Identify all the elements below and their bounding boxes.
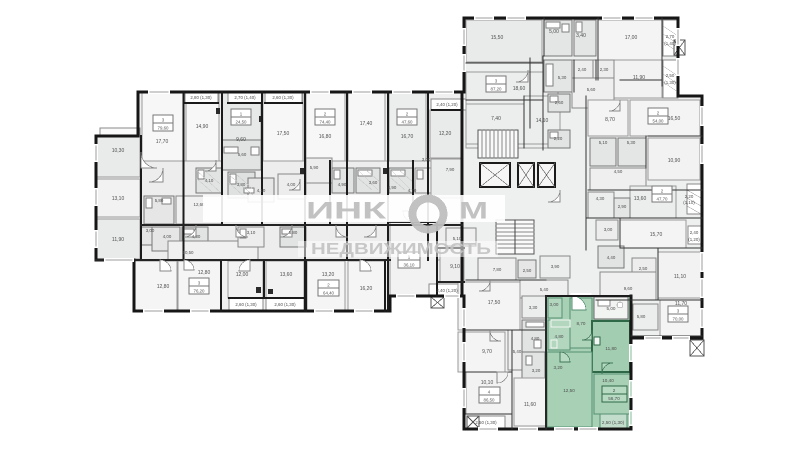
svg-text:11,90: 11,90 <box>112 237 124 243</box>
svg-text:3,30: 3,30 <box>529 305 538 310</box>
svg-text:13,20: 13,20 <box>322 272 335 278</box>
svg-text:5,80: 5,80 <box>155 198 164 203</box>
svg-text:4,80: 4,80 <box>192 234 201 239</box>
svg-text:5,00: 5,00 <box>607 306 616 311</box>
svg-text:56,70: 56,70 <box>608 396 620 401</box>
svg-text:16,20: 16,20 <box>360 286 373 292</box>
svg-text:36,10: 36,10 <box>404 263 416 268</box>
svg-text:НЕДВИЖИМОСТЬ: НЕДВИЖИМОСТЬ <box>311 241 491 258</box>
svg-text:9,70: 9,70 <box>482 349 492 355</box>
svg-text:2,60 (1,30): 2,60 (1,30) <box>272 95 294 100</box>
svg-text:2,50 (1,30): 2,50 (1,30) <box>602 420 625 425</box>
svg-text:3,20: 3,20 <box>554 365 563 370</box>
svg-text:86,50: 86,50 <box>484 398 496 403</box>
svg-text:18,60: 18,60 <box>513 86 526 92</box>
svg-text:4,00: 4,00 <box>287 182 296 187</box>
svg-text:4,10: 4,10 <box>257 188 266 193</box>
svg-text:3,40: 3,40 <box>576 33 586 39</box>
svg-text:5,30: 5,30 <box>627 140 636 145</box>
svg-text:ИНК: ИНК <box>306 198 387 225</box>
svg-text:17,00: 17,00 <box>625 35 638 41</box>
svg-text:4,80: 4,80 <box>555 334 564 339</box>
svg-text:5,40: 5,40 <box>540 287 549 292</box>
svg-text:5,40: 5,40 <box>513 349 522 354</box>
svg-text:13,10: 13,10 <box>112 196 125 202</box>
svg-text:11,90: 11,90 <box>633 75 645 81</box>
svg-text:2,50 (1,30): 2,50 (1,30) <box>475 420 497 425</box>
svg-text:2,40 (1,20): 2,40 (1,20) <box>436 288 458 293</box>
svg-text:64,40: 64,40 <box>323 291 335 296</box>
svg-text:2,70 (1,40): 2,70 (1,40) <box>234 95 256 100</box>
svg-text:4,40: 4,40 <box>607 255 616 260</box>
svg-text:12,80: 12,80 <box>157 284 170 290</box>
svg-text:12,00: 12,00 <box>236 272 249 278</box>
svg-text:2,90: 2,90 <box>618 204 627 209</box>
svg-text:2: 2 <box>613 388 616 393</box>
svg-text:12,20: 12,20 <box>439 131 452 137</box>
svg-text:16,80: 16,80 <box>319 134 332 140</box>
svg-text:2,40: 2,40 <box>690 230 699 235</box>
svg-text:М: М <box>459 198 488 225</box>
svg-text:87,20: 87,20 <box>491 87 503 92</box>
svg-text:5,30: 5,30 <box>558 75 567 80</box>
svg-text:7,90: 7,90 <box>446 167 455 172</box>
svg-text:8,70: 8,70 <box>577 321 586 326</box>
svg-text:2,50: 2,50 <box>639 266 648 271</box>
svg-text:13,60: 13,60 <box>280 272 293 278</box>
svg-text:3,10: 3,10 <box>247 230 256 235</box>
svg-text:2,20: 2,20 <box>685 194 694 199</box>
svg-text:7,40: 7,40 <box>491 116 501 122</box>
svg-text:14,90: 14,90 <box>196 124 209 130</box>
svg-text:9,60: 9,60 <box>236 137 246 143</box>
svg-text:4,70: 4,70 <box>408 188 417 193</box>
svg-text:11,10: 11,10 <box>674 274 686 280</box>
svg-text:5,90: 5,90 <box>310 165 319 170</box>
svg-text:79,60: 79,60 <box>158 126 170 131</box>
svg-text:2,40: 2,40 <box>578 67 587 72</box>
svg-text:9,10: 9,10 <box>450 264 460 270</box>
svg-text:2,80 (1,30): 2,80 (1,30) <box>190 95 212 100</box>
svg-text:2,60: 2,60 <box>555 100 564 105</box>
svg-text:11,60: 11,60 <box>524 402 536 408</box>
svg-text:4,30: 4,30 <box>596 196 605 201</box>
svg-text:4,90: 4,90 <box>338 182 347 187</box>
svg-text:3,60: 3,60 <box>369 180 378 185</box>
svg-text:10,30: 10,30 <box>112 148 125 154</box>
svg-text:4,10: 4,10 <box>205 178 214 183</box>
svg-text:74,40: 74,40 <box>320 120 332 125</box>
svg-text:54,00: 54,00 <box>653 119 665 124</box>
svg-text:5,80: 5,80 <box>637 314 646 319</box>
svg-text:3,00: 3,00 <box>422 157 431 162</box>
svg-text:5,00: 5,00 <box>549 29 559 35</box>
svg-text:(1,20): (1,20) <box>688 237 700 242</box>
svg-text:(1,30): (1,30) <box>664 80 676 85</box>
svg-text:16,50: 16,50 <box>668 116 681 122</box>
svg-text:3,00: 3,00 <box>146 228 155 233</box>
svg-text:2,60 (1,30): 2,60 (1,30) <box>274 302 296 307</box>
svg-text:5,10: 5,10 <box>599 140 608 145</box>
svg-text:3,90: 3,90 <box>551 264 560 269</box>
svg-text:4,80: 4,80 <box>531 336 540 341</box>
svg-text:15,50: 15,50 <box>491 35 504 41</box>
svg-text:10,10: 10,10 <box>481 380 494 386</box>
svg-text:4,90: 4,90 <box>388 185 397 190</box>
svg-text:12,50: 12,50 <box>563 388 575 393</box>
svg-text:15,70: 15,70 <box>650 232 663 238</box>
svg-text:9,60: 9,60 <box>624 286 633 291</box>
svg-text:14,10: 14,10 <box>536 118 549 124</box>
svg-text:8,70: 8,70 <box>605 117 615 123</box>
svg-text:5,60: 5,60 <box>587 87 596 92</box>
svg-text:10,50: 10,50 <box>183 250 195 255</box>
svg-text:2,60 (1,30): 2,60 (1,30) <box>235 302 257 307</box>
svg-text:10,90: 10,90 <box>668 158 681 164</box>
svg-text:2,40 (1,20): 2,40 (1,20) <box>436 102 458 107</box>
svg-text:5,60: 5,60 <box>238 152 247 157</box>
svg-text:5,80: 5,80 <box>289 230 298 235</box>
svg-text:4,00: 4,00 <box>163 234 172 239</box>
svg-text:10,40: 10,40 <box>602 378 614 383</box>
svg-text:13,60: 13,60 <box>634 196 647 202</box>
svg-text:17,70: 17,70 <box>156 139 169 145</box>
svg-text:7,80: 7,80 <box>493 267 502 272</box>
svg-text:2,50: 2,50 <box>666 73 675 78</box>
svg-text:(1,40): (1,40) <box>664 41 676 46</box>
svg-text:17,50: 17,50 <box>488 300 501 306</box>
svg-text:17,50: 17,50 <box>277 131 290 137</box>
svg-text:4,50: 4,50 <box>614 169 623 174</box>
svg-text:47,70: 47,70 <box>657 197 669 202</box>
svg-text:76,20: 76,20 <box>194 289 206 294</box>
svg-text:47,60: 47,60 <box>402 120 414 125</box>
svg-text:2,30: 2,30 <box>600 67 609 72</box>
svg-text:2,70: 2,70 <box>666 34 675 39</box>
svg-text:2,20: 2,20 <box>554 136 563 141</box>
svg-text:70,00: 70,00 <box>673 317 685 322</box>
svg-text:11,80: 11,80 <box>605 346 617 351</box>
svg-text:2,50: 2,50 <box>523 268 532 273</box>
svg-text:11,70: 11,70 <box>675 301 687 307</box>
svg-text:3,00: 3,00 <box>550 302 559 307</box>
svg-text:24,50: 24,50 <box>236 120 248 125</box>
svg-text:3,20: 3,20 <box>532 368 541 373</box>
svg-text:3,00: 3,00 <box>604 227 613 232</box>
svg-text:12,80: 12,80 <box>198 270 211 276</box>
svg-text:(1,10): (1,10) <box>683 200 695 205</box>
svg-text:3,80: 3,80 <box>237 182 246 187</box>
svg-text:16,70: 16,70 <box>401 134 414 140</box>
svg-text:17,40: 17,40 <box>360 121 373 127</box>
